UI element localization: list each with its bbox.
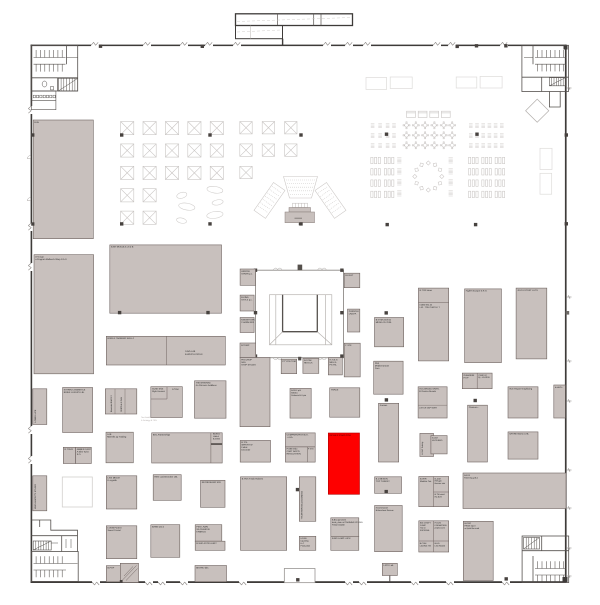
svg-text:STOP STUDIO: STOP STUDIO bbox=[241, 363, 256, 366]
svg-text:LIGHT Fidelity: LIGHT Fidelity bbox=[421, 442, 424, 455]
svg-text:project.com: project.com bbox=[435, 526, 446, 529]
svg-text:B.MEGA: B.MEGA bbox=[555, 386, 563, 389]
svg-text:B.POP: B.POP bbox=[108, 567, 115, 570]
svg-text:Fattening grill.a: Fattening grill.a bbox=[464, 476, 479, 479]
svg-text:B.TCR know: B.TCR know bbox=[420, 289, 433, 292]
svg-text:Bearcats BABY.LY: Bearcats BABY.LY bbox=[110, 394, 113, 412]
svg-text:EXPERIAL: EXPERIAL bbox=[420, 529, 431, 532]
svg-text:B Grossa Rucola: B Grossa Rucola bbox=[419, 390, 436, 393]
svg-text:B.MO LAMP LUCK: B.MO LAMP LUCK bbox=[332, 537, 351, 540]
svg-text:B.MT MODULE.LS d B: B.MT MODULE.LS d B bbox=[111, 246, 134, 249]
svg-text:CAVA LAB: CAVA LAB bbox=[185, 350, 196, 353]
svg-text:B.EAST: B.EAST bbox=[345, 274, 353, 277]
svg-text:RETAILS STARS.COM: RETAILS STARS.COM bbox=[330, 434, 352, 437]
svg-text:LED.ROMA: LED.ROMA bbox=[435, 544, 446, 547]
svg-text:Sweet Cronet: Sweet Cronet bbox=[108, 529, 122, 532]
svg-text:a Program Mellow b.Shop S.A.S: a Program Mellow b.Shop S.A.S bbox=[35, 258, 67, 261]
svg-text:LAB.PA: LAB.PA bbox=[349, 312, 357, 315]
svg-text:P.OP: P.OP bbox=[464, 376, 469, 379]
svg-text:Ra.BUS: Ra.BUS bbox=[435, 495, 443, 498]
svg-text:B.TNT A Solo Roberts: B.TNT A Solo Roberts bbox=[242, 478, 264, 481]
svg-text:B.06: B.06 bbox=[34, 121, 39, 124]
svg-text:REG Luxinteractive LBL: REG Luxinteractive LBL bbox=[154, 476, 178, 479]
svg-text:REG.CA: REG.CA bbox=[304, 362, 313, 365]
svg-text:S.O.: S.O. bbox=[77, 453, 82, 456]
svg-text:Preberta B.S.pta: Preberta B.S.pta bbox=[291, 394, 307, 397]
svg-text:LATO Lab: LATO Lab bbox=[384, 564, 395, 567]
svg-text:+ ALA.: + ALA. bbox=[287, 436, 294, 439]
svg-text:KIWI ALACRITY STUDIO: KIWI ALACRITY STUDIO bbox=[34, 484, 37, 509]
svg-text:An Princess Avidileos: An Princess Avidileos bbox=[196, 384, 218, 387]
svg-text:TRADE: TRADE bbox=[331, 389, 339, 392]
svg-text:K organik: K organik bbox=[108, 479, 118, 482]
svg-text:F STE: F STE bbox=[345, 344, 352, 347]
svg-text:PS TAL: PS TAL bbox=[330, 364, 338, 367]
svg-text:Decorate: Decorate bbox=[241, 449, 251, 452]
svg-text:w.Spirit film arab: w.Spirit film arab bbox=[465, 527, 481, 530]
svg-text:TYLER MIRACULOUSNESS: TYLER MIRACULOUSNESS bbox=[300, 491, 303, 520]
svg-text:B.WATCH PATHS: B.WATCH PATHS bbox=[185, 353, 203, 356]
svg-text:F STE: F STE bbox=[308, 448, 314, 451]
svg-text:Pleasure...: Pleasure... bbox=[469, 406, 480, 409]
svg-text:B.SHO ACCELLARY: B.SHO ACCELLARY bbox=[196, 542, 217, 545]
svg-text:B.TEMP: B.TEMP bbox=[241, 344, 250, 347]
svg-text:Fight'A Europe S.R.O.: Fight'A Europe S.R.O. bbox=[466, 290, 488, 293]
svg-text:LOWE LUCK: LOWE LUCK bbox=[34, 409, 37, 422]
svg-text:Bremer arts: Bremer arts bbox=[435, 482, 445, 485]
svg-text:REGULATION: REGULATION bbox=[287, 453, 301, 456]
svg-text:SATIRE Momo LAB.: SATIRE Momo LAB. bbox=[509, 433, 529, 436]
svg-text:BRIDE LUXURY LBL: BRIDE LUXURY LBL bbox=[64, 391, 85, 394]
svg-text:Michelle.up Trading: Michelle.up Trading bbox=[107, 436, 127, 439]
svg-text:LADING TW: LADING TW bbox=[420, 544, 431, 547]
svg-text:BANG tws.b: BANG tws.b bbox=[152, 526, 165, 529]
svg-text:JOLTA STORT LUTS: JOLTA STORT LUTS bbox=[517, 289, 538, 292]
svg-text:Oj...LO.GEN: Oj...LO.GEN bbox=[478, 376, 490, 379]
svg-text:F.COM: F.COM bbox=[172, 388, 179, 391]
svg-text:P.TYCS.COM: P.TYCS.COM bbox=[282, 360, 296, 363]
svg-text:BISTRO bits: BISTRO bits bbox=[196, 566, 209, 569]
svg-text:Aromas: Aromas bbox=[380, 404, 388, 407]
svg-text:Style Houses: Style Houses bbox=[152, 390, 166, 393]
svg-text:BIG_Partnerships: BIG_Partnerships bbox=[153, 434, 171, 437]
svg-text:R.TOUR: R.TOUR bbox=[65, 448, 74, 451]
svg-text:STYLE p.c.: STYLE p.c. bbox=[241, 298, 252, 301]
svg-text:MEDIA GL GIRL: MEDIA GL GIRL bbox=[376, 321, 393, 324]
svg-text:CHARM SPA: CHARM SPA bbox=[241, 321, 254, 324]
svg-text:REFRESHING SPA: REFRESHING SPA bbox=[202, 481, 222, 484]
svg-text:STARR p.c.: STARR p.c. bbox=[241, 272, 253, 275]
svg-text:B.Benchem Rescue: B.Benchem Rescue bbox=[376, 509, 395, 512]
svg-text:B.COM: B.COM bbox=[213, 438, 220, 441]
svg-text:Text booth: Text booth bbox=[141, 416, 150, 419]
svg-text:ACE Report Graphicing: ACE Report Graphicing bbox=[509, 388, 533, 391]
svg-text:Medina Tea: Medina Tea bbox=[420, 480, 432, 483]
svg-text:CERTIALS PAN: CERTIALS PAN bbox=[120, 397, 123, 412]
svg-text:FABRICS: FABRICS bbox=[196, 531, 206, 534]
svg-text:Pasta fondash: Pasta fondash bbox=[332, 524, 345, 527]
svg-text:TOP TURKEY: TOP TURKEY bbox=[376, 480, 390, 483]
svg-text:LOTUS VAP SORT: LOTUS VAP SORT bbox=[419, 406, 438, 409]
svg-text:BOREA TRAINING SKILLZ: BOREA TRAINING SKILLZ bbox=[108, 337, 135, 340]
svg-text:Cure: Cure bbox=[375, 367, 381, 370]
svg-text:A Strategy B.TEN: A Strategy B.TEN bbox=[141, 419, 157, 422]
svg-text:Production: Production bbox=[301, 545, 311, 548]
svg-text:W.GR.BRO: W.GR.BRO bbox=[432, 439, 443, 442]
svg-text:LIG - TOM TURTLE T: LIG - TOM TURTLE T bbox=[420, 306, 441, 309]
